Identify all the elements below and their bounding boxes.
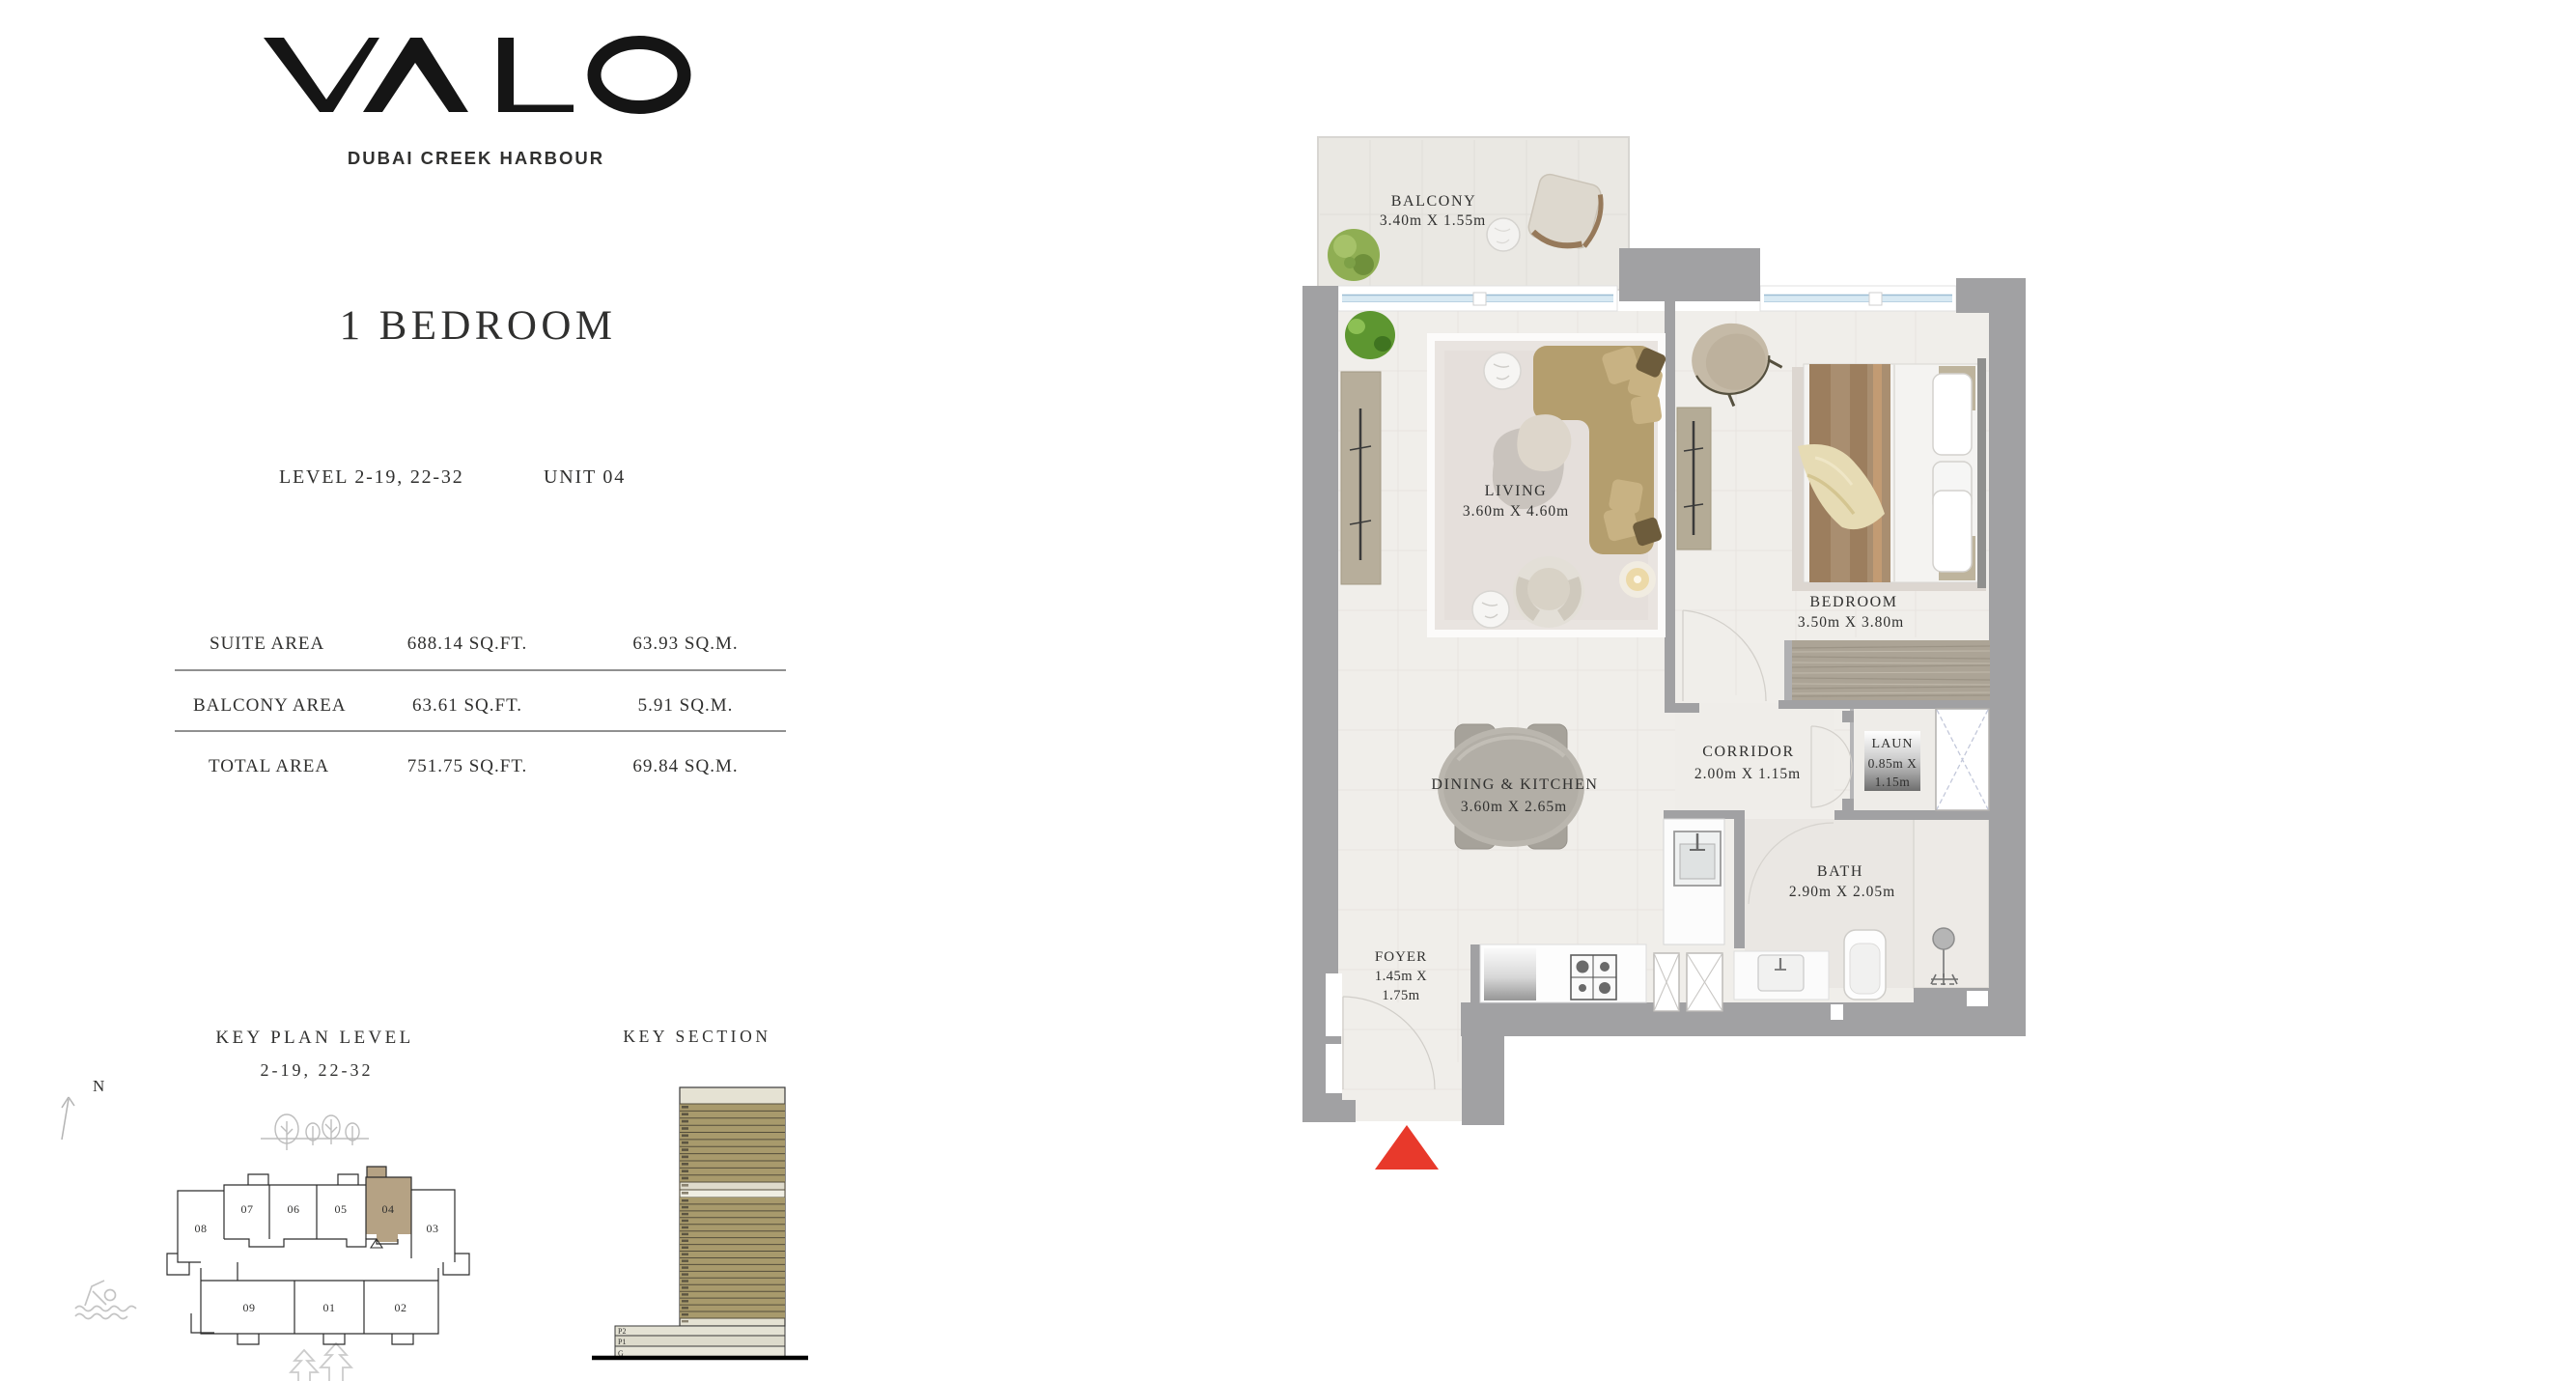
svg-text:P1: P1 xyxy=(618,1338,626,1346)
svg-text:BEDROOM: BEDROOM xyxy=(1809,594,1897,610)
svg-text:LEVEL 2-19, 22-32: LEVEL 2-19, 22-32 xyxy=(279,466,464,488)
svg-text:BALCONY AREA: BALCONY AREA xyxy=(193,695,347,716)
svg-text:1.45m X: 1.45m X xyxy=(1375,969,1427,984)
svg-text:1 BEDROOM: 1 BEDROOM xyxy=(340,303,617,349)
svg-text:BATH: BATH xyxy=(1817,863,1863,880)
svg-text:05: 05 xyxy=(335,1202,348,1216)
svg-text:DINING & KITCHEN: DINING & KITCHEN xyxy=(1431,776,1598,793)
svg-text:TOTAL AREA: TOTAL AREA xyxy=(209,756,329,776)
svg-text:02: 02 xyxy=(395,1301,407,1314)
svg-text:3.40m X 1.55m: 3.40m X 1.55m xyxy=(1380,212,1486,229)
svg-text:1.75m: 1.75m xyxy=(1382,988,1419,1003)
svg-text:69.84 SQ.M.: 69.84 SQ.M. xyxy=(632,756,738,776)
svg-text:63.61 SQ.FT.: 63.61 SQ.FT. xyxy=(412,695,522,716)
svg-text:SUITE AREA: SUITE AREA xyxy=(210,634,324,654)
svg-text:LIVING: LIVING xyxy=(1485,483,1548,499)
svg-text:P2: P2 xyxy=(618,1327,626,1336)
svg-text:KEY PLAN LEVEL: KEY PLAN LEVEL xyxy=(215,1028,413,1048)
svg-text:DUBAI CREEK HARBOUR: DUBAI CREEK HARBOUR xyxy=(348,148,604,168)
svg-text:UNIT 04: UNIT 04 xyxy=(544,466,626,488)
svg-text:3.60m X 2.65m: 3.60m X 2.65m xyxy=(1461,799,1567,815)
svg-text:04: 04 xyxy=(382,1202,395,1216)
svg-text:5.91 SQ.M.: 5.91 SQ.M. xyxy=(638,695,734,716)
svg-text:03: 03 xyxy=(427,1222,439,1235)
svg-text:751.75 SQ.FT.: 751.75 SQ.FT. xyxy=(407,756,528,776)
svg-text:08: 08 xyxy=(195,1222,208,1235)
svg-text:2-19, 22-32: 2-19, 22-32 xyxy=(261,1060,374,1080)
svg-text:06: 06 xyxy=(288,1202,300,1216)
svg-text:688.14 SQ.FT.: 688.14 SQ.FT. xyxy=(407,634,528,654)
svg-text:FOYER: FOYER xyxy=(1375,949,1427,965)
svg-text:3.50m X 3.80m: 3.50m X 3.80m xyxy=(1798,614,1904,631)
svg-text:KEY SECTION: KEY SECTION xyxy=(623,1027,770,1046)
svg-text:CORRIDOR: CORRIDOR xyxy=(1702,744,1794,760)
svg-text:07: 07 xyxy=(241,1202,254,1216)
svg-text:LAUN: LAUN xyxy=(1872,737,1914,751)
svg-text:2.00m X 1.15m: 2.00m X 1.15m xyxy=(1694,766,1801,782)
svg-text:3.60m X 4.60m: 3.60m X 4.60m xyxy=(1463,503,1569,520)
svg-text:1.15m: 1.15m xyxy=(1875,775,1911,789)
svg-text:N: N xyxy=(93,1077,104,1095)
svg-text:09: 09 xyxy=(243,1301,256,1314)
svg-text:2.90m X 2.05m: 2.90m X 2.05m xyxy=(1789,884,1895,900)
svg-text:0.85m X: 0.85m X xyxy=(1868,756,1918,771)
svg-text:01: 01 xyxy=(323,1301,336,1314)
svg-text:BALCONY: BALCONY xyxy=(1391,193,1477,210)
svg-text:63.93 SQ.M.: 63.93 SQ.M. xyxy=(632,634,738,654)
